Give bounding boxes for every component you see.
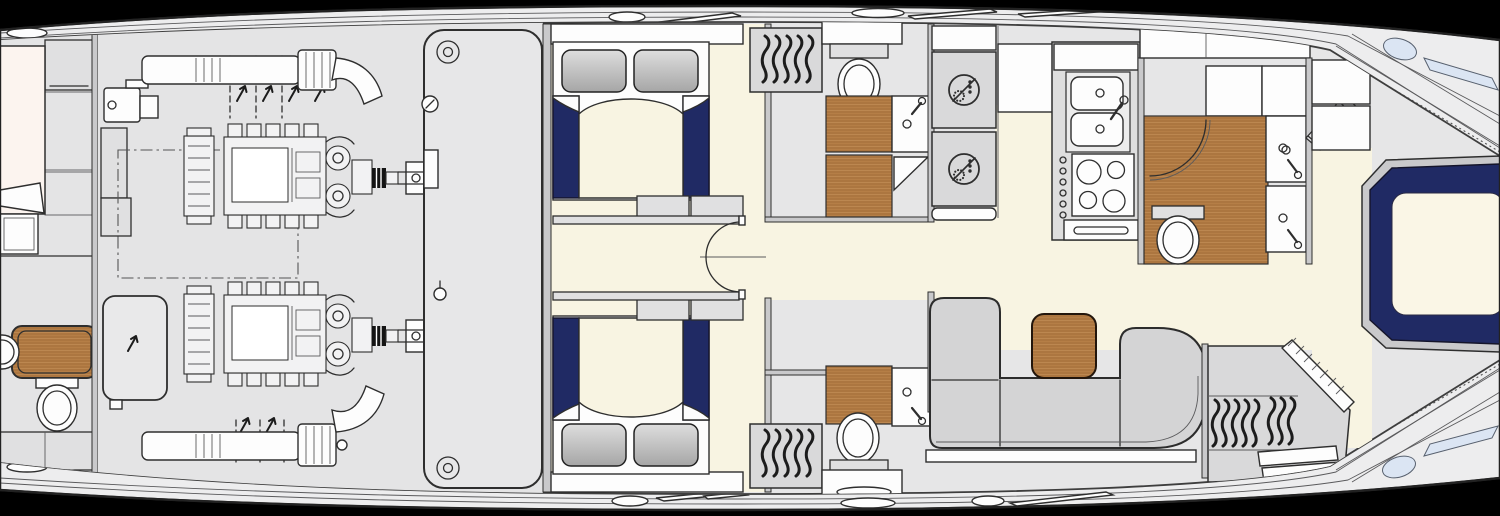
galley (1052, 42, 1140, 240)
duvet (579, 318, 683, 417)
bulkhead (92, 28, 98, 490)
aft-cabin (0, 28, 98, 490)
window-icon (852, 9, 904, 18)
teak-counter (12, 326, 97, 378)
engine-room (98, 22, 551, 494)
pillow (562, 424, 626, 466)
pillow (562, 50, 626, 92)
bow-bed-mattress (1392, 193, 1500, 315)
gauge-icon (422, 96, 438, 112)
sink-icon (1071, 113, 1123, 146)
window-icon (609, 12, 645, 22)
bulkhead (543, 24, 551, 492)
fuel-tank (103, 296, 167, 409)
salon-table (1032, 314, 1096, 378)
window-icon (972, 496, 1004, 506)
teak-floor (826, 96, 892, 152)
drawer (1064, 220, 1138, 240)
foot-shelf (637, 196, 689, 218)
bed-spread (553, 96, 579, 198)
toilet-icon (36, 378, 78, 431)
stove-icon (1072, 154, 1134, 216)
window-icon (612, 496, 648, 506)
window-icon (841, 498, 895, 508)
day-head (1138, 6, 1312, 264)
yacht-deck-plan (0, 0, 1500, 516)
floor-plan-image (0, 0, 1500, 516)
toilet-icon (837, 413, 879, 463)
sink-icon (1071, 77, 1123, 110)
pillow (634, 424, 698, 466)
sink-cabinet (892, 368, 930, 426)
bed-spread (553, 318, 579, 420)
foot-shelf (637, 298, 689, 320)
bulkhead-panel (422, 30, 542, 488)
duvet (579, 99, 683, 198)
teak-floor (826, 155, 892, 217)
pillow (634, 50, 698, 92)
